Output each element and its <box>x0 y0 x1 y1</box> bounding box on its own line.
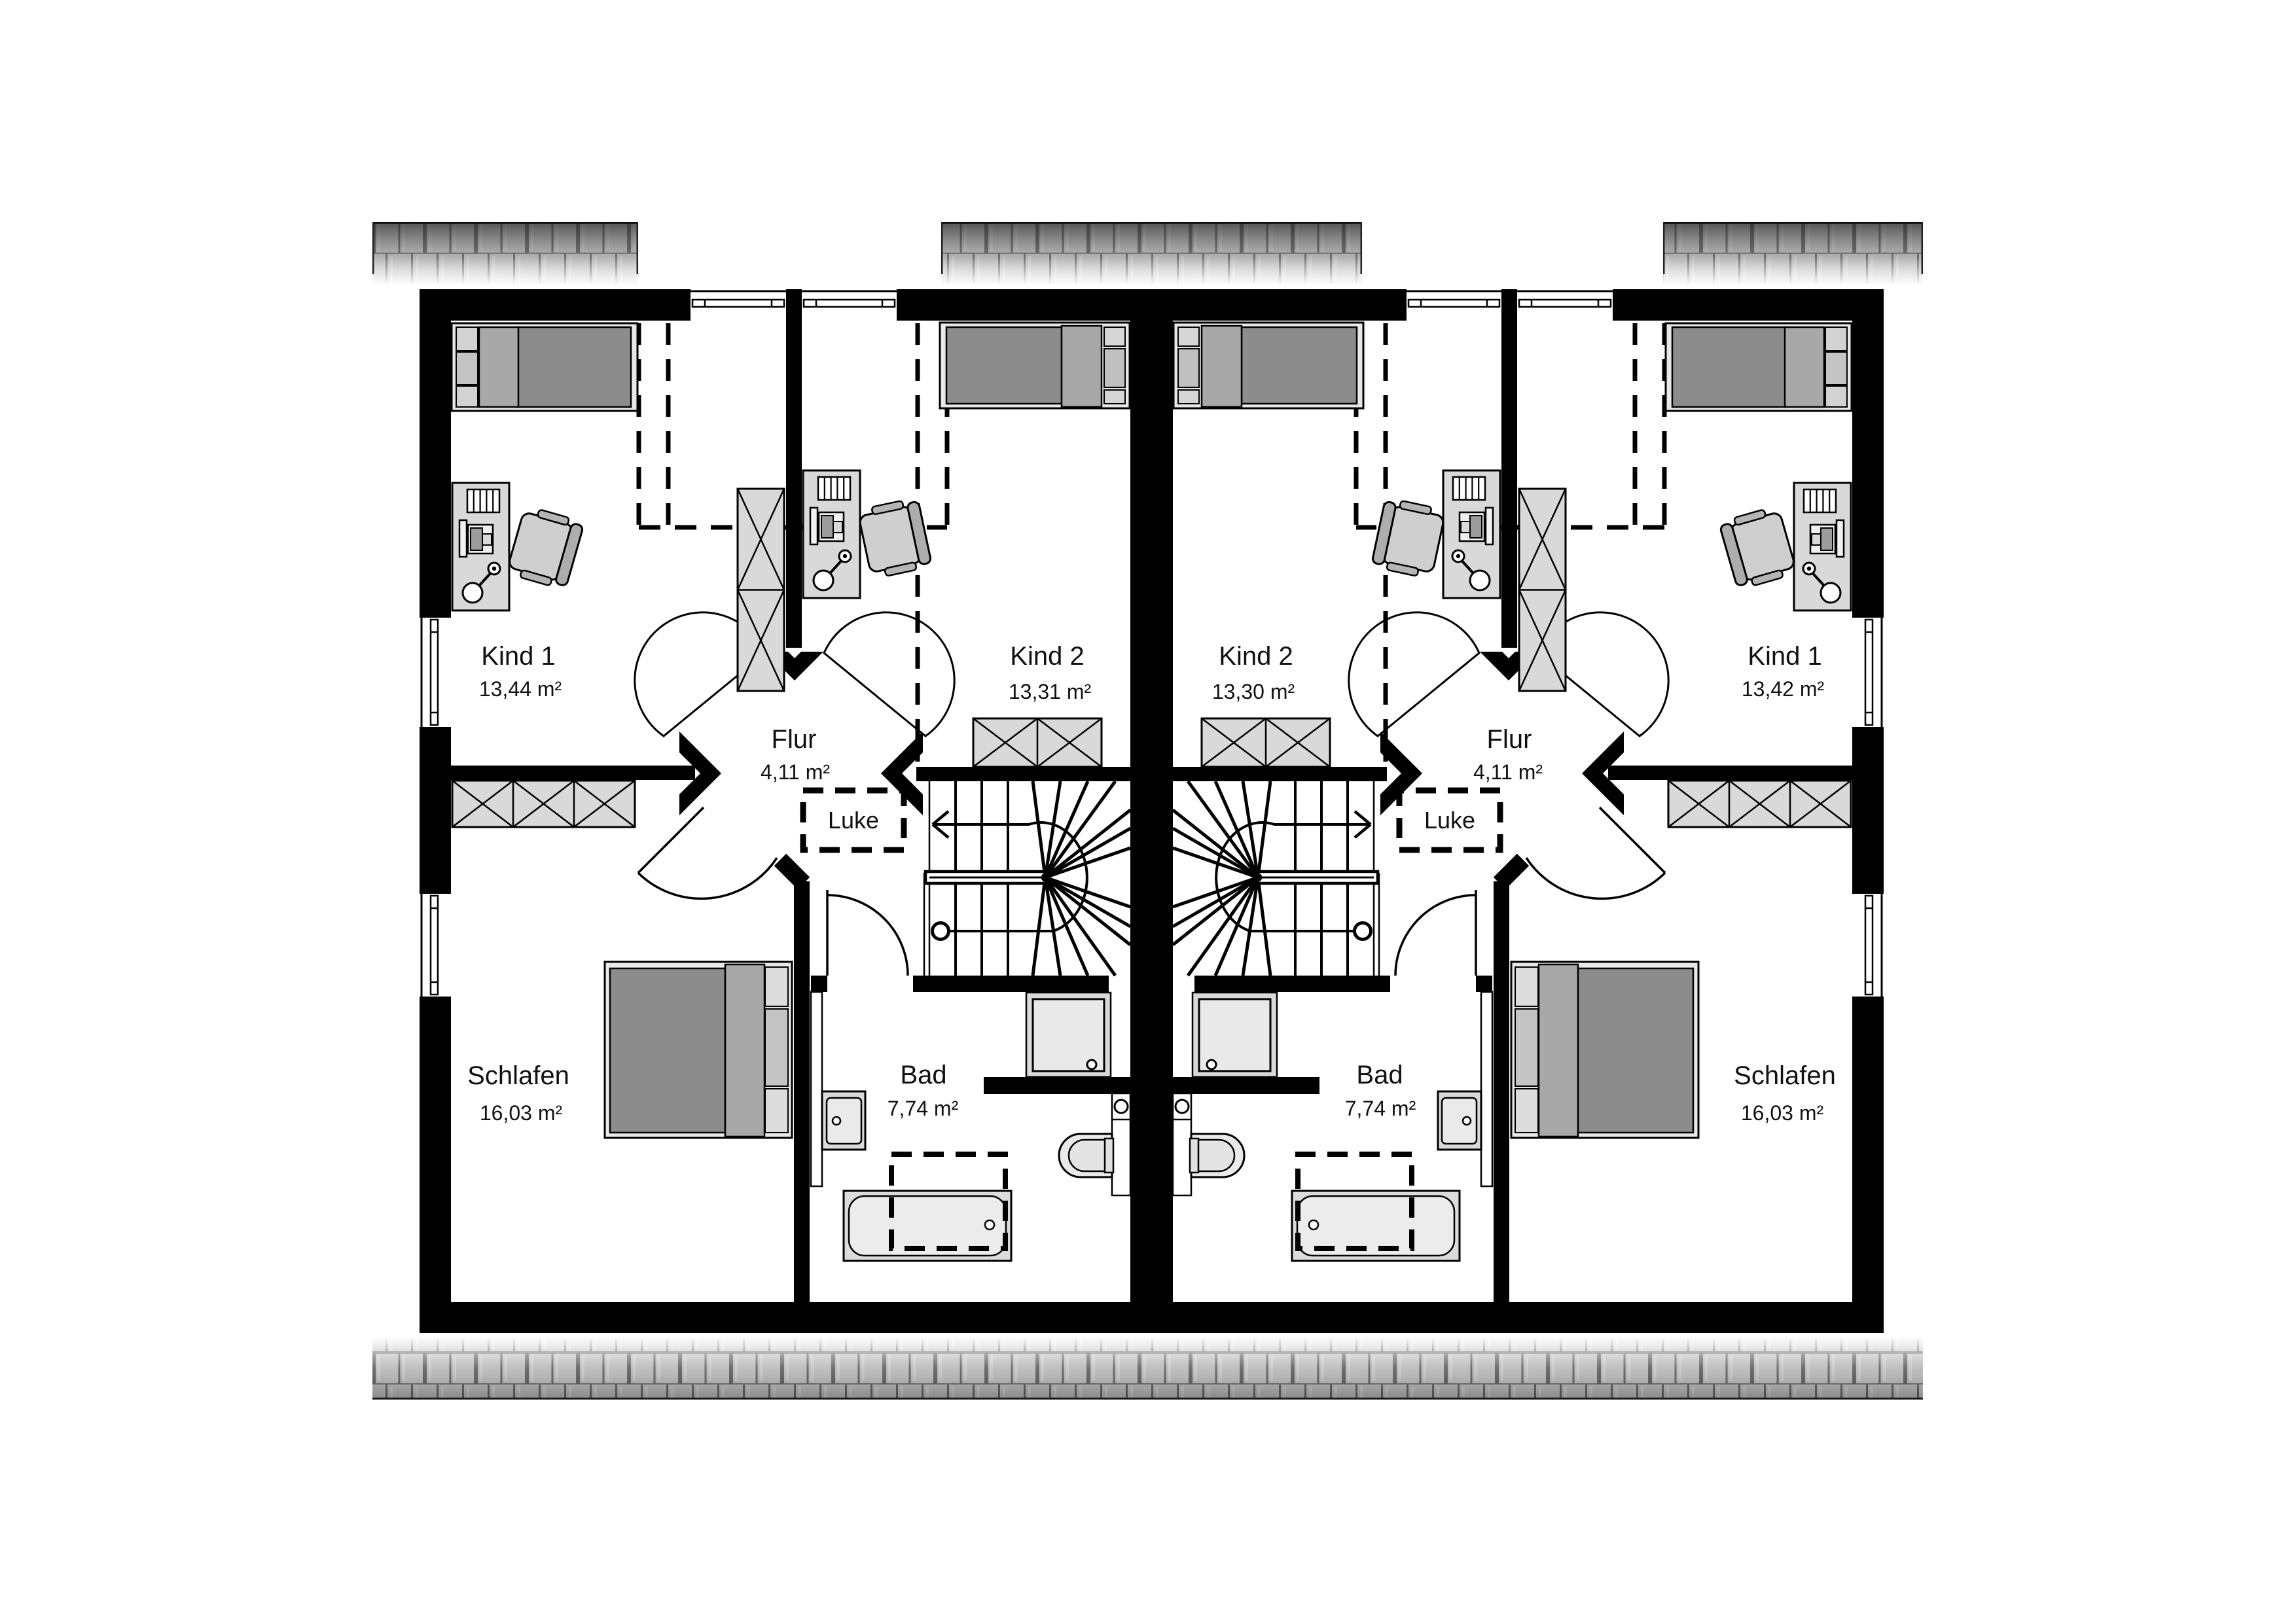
svg-text:7,74 m²: 7,74 m² <box>888 1097 959 1120</box>
svg-text:4,11 m²: 4,11 m² <box>761 760 830 784</box>
svg-text:7,74 m²: 7,74 m² <box>1345 1097 1416 1120</box>
svg-text:Schlafen: Schlafen <box>1734 1061 1836 1090</box>
svg-text:Kind 1: Kind 1 <box>481 642 555 671</box>
svg-text:4,11 m²: 4,11 m² <box>1473 760 1543 784</box>
svg-text:Kind 2: Kind 2 <box>1010 642 1084 671</box>
svg-text:13,44 m²: 13,44 m² <box>479 677 562 701</box>
svg-text:Kind 1: Kind 1 <box>1748 642 1821 671</box>
svg-text:13,30 m²: 13,30 m² <box>1212 680 1295 703</box>
svg-text:Schlafen: Schlafen <box>467 1061 569 1090</box>
svg-text:Kind 2: Kind 2 <box>1219 642 1293 671</box>
svg-text:13,31 m²: 13,31 m² <box>1009 680 1092 703</box>
svg-text:Luke: Luke <box>828 807 879 834</box>
svg-text:Flur: Flur <box>1487 725 1532 754</box>
svg-text:Bad: Bad <box>900 1061 946 1089</box>
svg-text:16,03 m²: 16,03 m² <box>1741 1101 1824 1125</box>
svg-text:13,42 m²: 13,42 m² <box>1742 677 1825 701</box>
svg-text:Bad: Bad <box>1356 1061 1403 1089</box>
svg-text:16,03 m²: 16,03 m² <box>480 1101 563 1125</box>
svg-text:Luke: Luke <box>1424 807 1475 834</box>
svg-text:Flur: Flur <box>772 725 817 754</box>
